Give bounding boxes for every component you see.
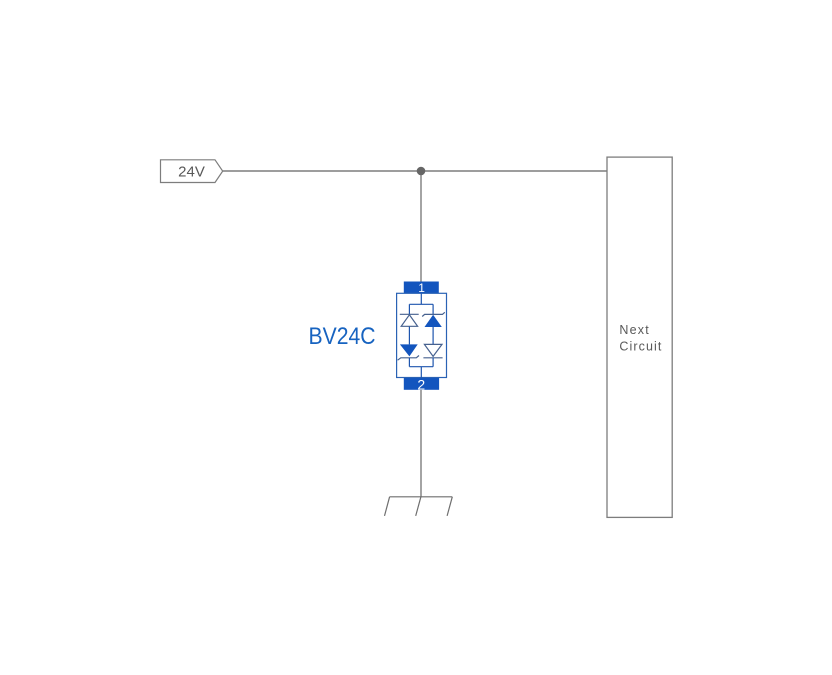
svg-text:2: 2 [417,376,425,392]
svg-text:Circuit: Circuit [619,340,662,354]
svg-text:BV24C: BV24C [309,323,376,350]
svg-text:24V: 24V [178,163,205,180]
svg-text:Next: Next [619,323,650,337]
svg-text:1: 1 [418,281,425,295]
